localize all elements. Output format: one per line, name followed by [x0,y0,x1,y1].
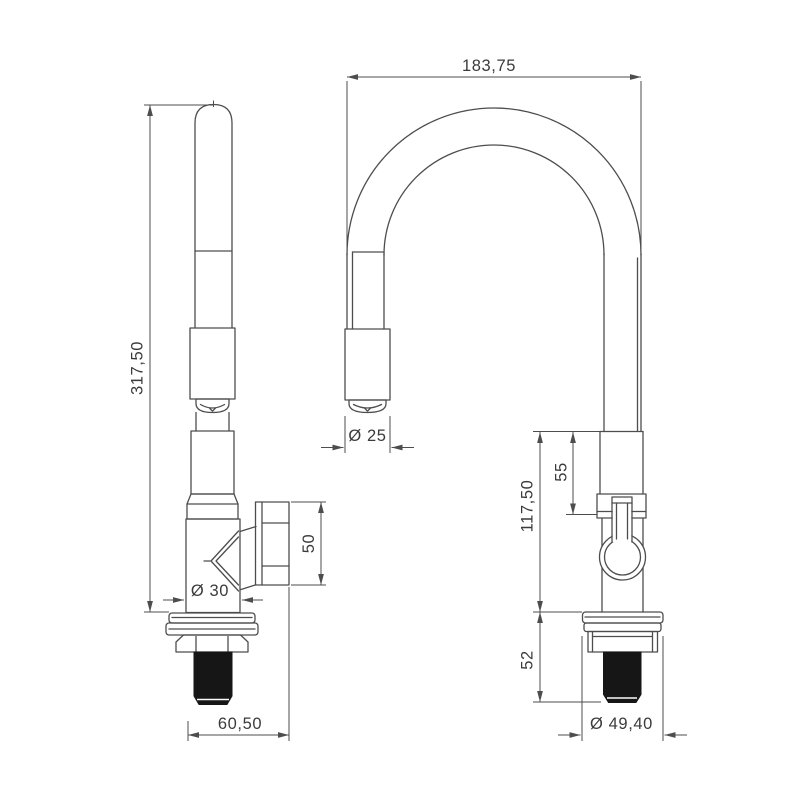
drawing-canvas: 317,50 50 Ø 30 60,50 [0,0,800,800]
dim-overall-height-label: 317,50 [128,341,146,395]
dim-spout-reach: 183,75 [347,57,641,252]
front-mounting-nut-facets [593,632,653,653]
housing-collar [187,494,238,519]
spray-sleeve [190,328,235,399]
dim-spout-reach-label: 183,75 [462,57,516,75]
dim-base-depth-label: 60,50 [218,715,262,733]
dim-neck-to-handle-label: 55 [552,462,570,482]
ring-handle-stem-mask [613,497,632,542]
dim-neck-to-handle: 55 [552,432,597,515]
gooseneck-arch-inner [384,145,604,255]
spray-cap-face-arc [201,405,225,409]
lever-handle [256,502,290,585]
gooseneck-arch-outer [347,108,641,255]
mounting-nut [176,635,248,652]
front-mounting-nut [588,632,658,653]
neck-tube [196,413,229,432]
threaded-shank [194,652,232,705]
ring-handle-inner [605,539,641,575]
dim-under-deck: 52 [518,612,601,702]
dim-handle-height-label: 50 [300,534,318,554]
riser-leg [604,254,641,432]
neck-housing [600,432,643,495]
dim-body-diameter: Ø 30 [163,582,263,600]
dim-body-diameter-label: Ø 30 [191,582,229,600]
upper-housing [191,431,234,494]
handle-hub [240,527,256,590]
dim-flange-diameter-label: Ø 49,40 [590,715,653,733]
dim-under-deck-label: 52 [518,650,536,670]
faucet-side-view: 317,50 50 Ø 30 60,50 [128,101,326,742]
faucet-technical-drawing: 317,50 50 Ø 30 60,50 [0,0,800,800]
front-flange-plate-lower [584,623,661,632]
spout-cap-face-arc [354,405,382,409]
dim-spout-tip-diameter-label: Ø 25 [348,427,386,445]
dim-hose-to-deck: 117,50 [518,432,600,613]
dim-spout-tip-diameter: Ø 25 [321,416,414,453]
mounting-nut-facets [196,637,228,653]
dim-hose-to-deck-label: 117,50 [518,480,536,533]
faucet-front-view: 183,75 Ø 25 55 117,50 52 [321,57,687,741]
wand-tube [195,105,232,329]
dim-handle-height: 50 [291,502,326,585]
dim-overall-height: 317,50 [128,101,213,613]
spout-head [345,329,390,400]
front-threaded-shank [604,652,642,703]
